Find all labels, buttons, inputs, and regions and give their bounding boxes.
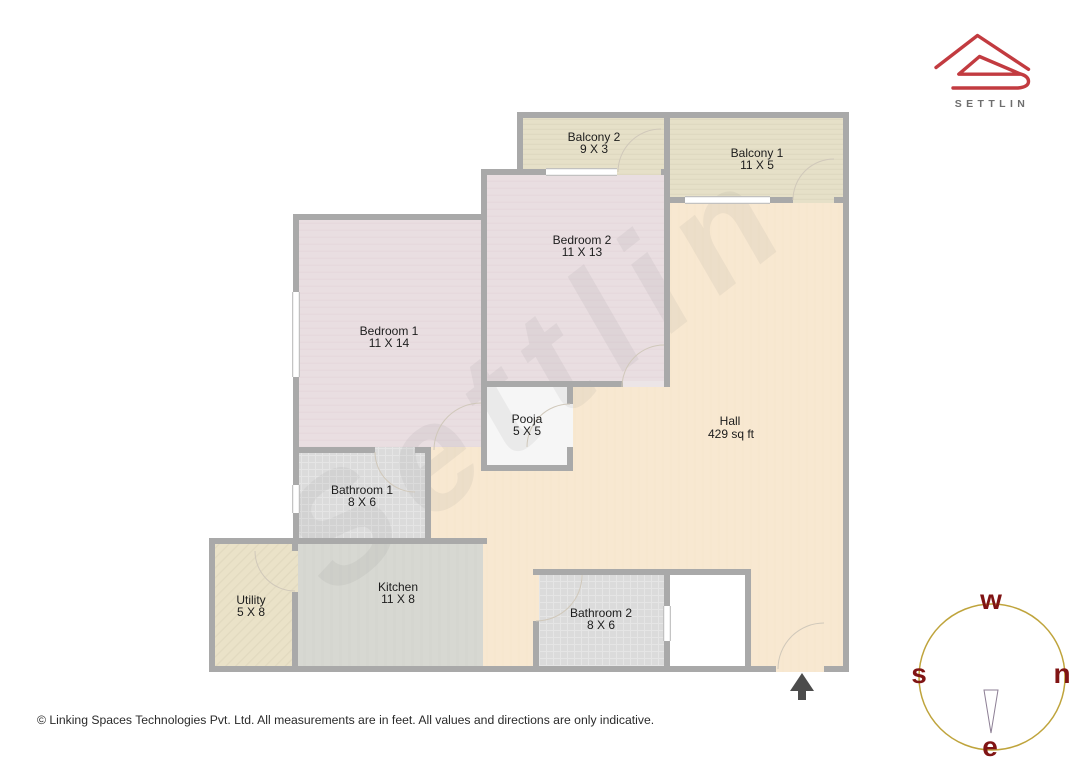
svg-text:11 X 14: 11 X 14: [369, 336, 410, 350]
svg-text:9 X 3: 9 X 3: [580, 142, 608, 156]
svg-text:8 X 6: 8 X 6: [348, 495, 376, 509]
svg-text:5 X 8: 5 X 8: [237, 605, 265, 619]
svg-text:5 X 5: 5 X 5: [513, 424, 541, 438]
svg-text:11 X 5: 11 X 5: [740, 158, 774, 172]
svg-text:s: s: [911, 658, 927, 689]
svg-text:8 X 6: 8 X 6: [587, 618, 615, 632]
svg-text:e: e: [982, 731, 998, 762]
svg-text:429 sq ft: 429 sq ft: [708, 427, 755, 441]
svg-text:Hall: Hall: [720, 414, 741, 428]
svg-text:w: w: [979, 584, 1002, 615]
svg-text:11 X 8: 11 X 8: [381, 592, 415, 606]
svg-text:SETTLIN: SETTLIN: [955, 98, 1030, 110]
svg-text:11 X 13: 11 X 13: [562, 245, 603, 259]
svg-text:n: n: [1053, 658, 1070, 689]
